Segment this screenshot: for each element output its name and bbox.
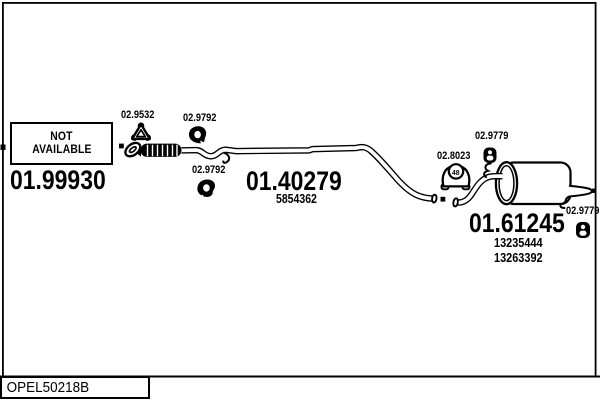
grommet-icon-top <box>484 148 497 164</box>
not-available-line1: NOT <box>50 131 72 144</box>
footer-code-box: OPEL50218B <box>0 376 150 399</box>
fitting-code-grommet-rear: 02.9779 <box>566 206 599 217</box>
oe-number-rear-2: 13263392 <box>494 251 543 264</box>
pipe-bracket-hook <box>223 153 229 163</box>
inlet-pipe-end <box>453 198 459 207</box>
flex-ribs <box>148 145 178 156</box>
bracket-size-label: 48 <box>452 169 460 177</box>
oe-number-rear-1: 13235444 <box>494 236 543 249</box>
rubber-mount-icon-bottom <box>197 179 215 197</box>
rubber-mount-icon-top <box>189 126 206 143</box>
tail-pipe <box>569 186 592 197</box>
flex-pipe <box>141 144 182 157</box>
fitting-code-gasket: 02.9532 <box>121 110 154 121</box>
connector-square-tail <box>592 189 596 193</box>
fitting-code-mount-top: 02.9792 <box>183 113 216 124</box>
rear-muffler <box>496 162 592 208</box>
fitting-code-bracket: 02.8023 <box>437 151 470 162</box>
part-code-center: 01.40279 <box>246 168 342 195</box>
frame-left-rule <box>2 2 4 376</box>
oe-number-center: 5854362 <box>276 193 317 206</box>
footer-code-label: OPEL50218B <box>2 380 89 396</box>
connector-square-center <box>441 197 446 202</box>
exhaust-diagram-page: NOT AVAILABLE 01.99930 02.9532 02.9792 0… <box>0 0 600 400</box>
fitting-code-mount-bottom: 02.9792 <box>192 165 225 176</box>
fitting-code-grommet-top: 02.9779 <box>475 131 508 142</box>
front-flex-section <box>123 140 182 159</box>
part-code-front: 01.99930 <box>10 167 106 194</box>
grommet-icon-rear <box>576 222 590 238</box>
connector-square-flange <box>119 144 124 149</box>
not-available-box: NOT AVAILABLE <box>10 122 113 165</box>
gasket-icon <box>132 123 150 140</box>
part-code-rear: 01.61245 <box>469 210 565 237</box>
not-available-line2: AVAILABLE <box>32 144 91 157</box>
frame-top-rule <box>2 2 597 4</box>
pipe-end <box>432 194 437 203</box>
connector-square-left <box>1 145 6 151</box>
